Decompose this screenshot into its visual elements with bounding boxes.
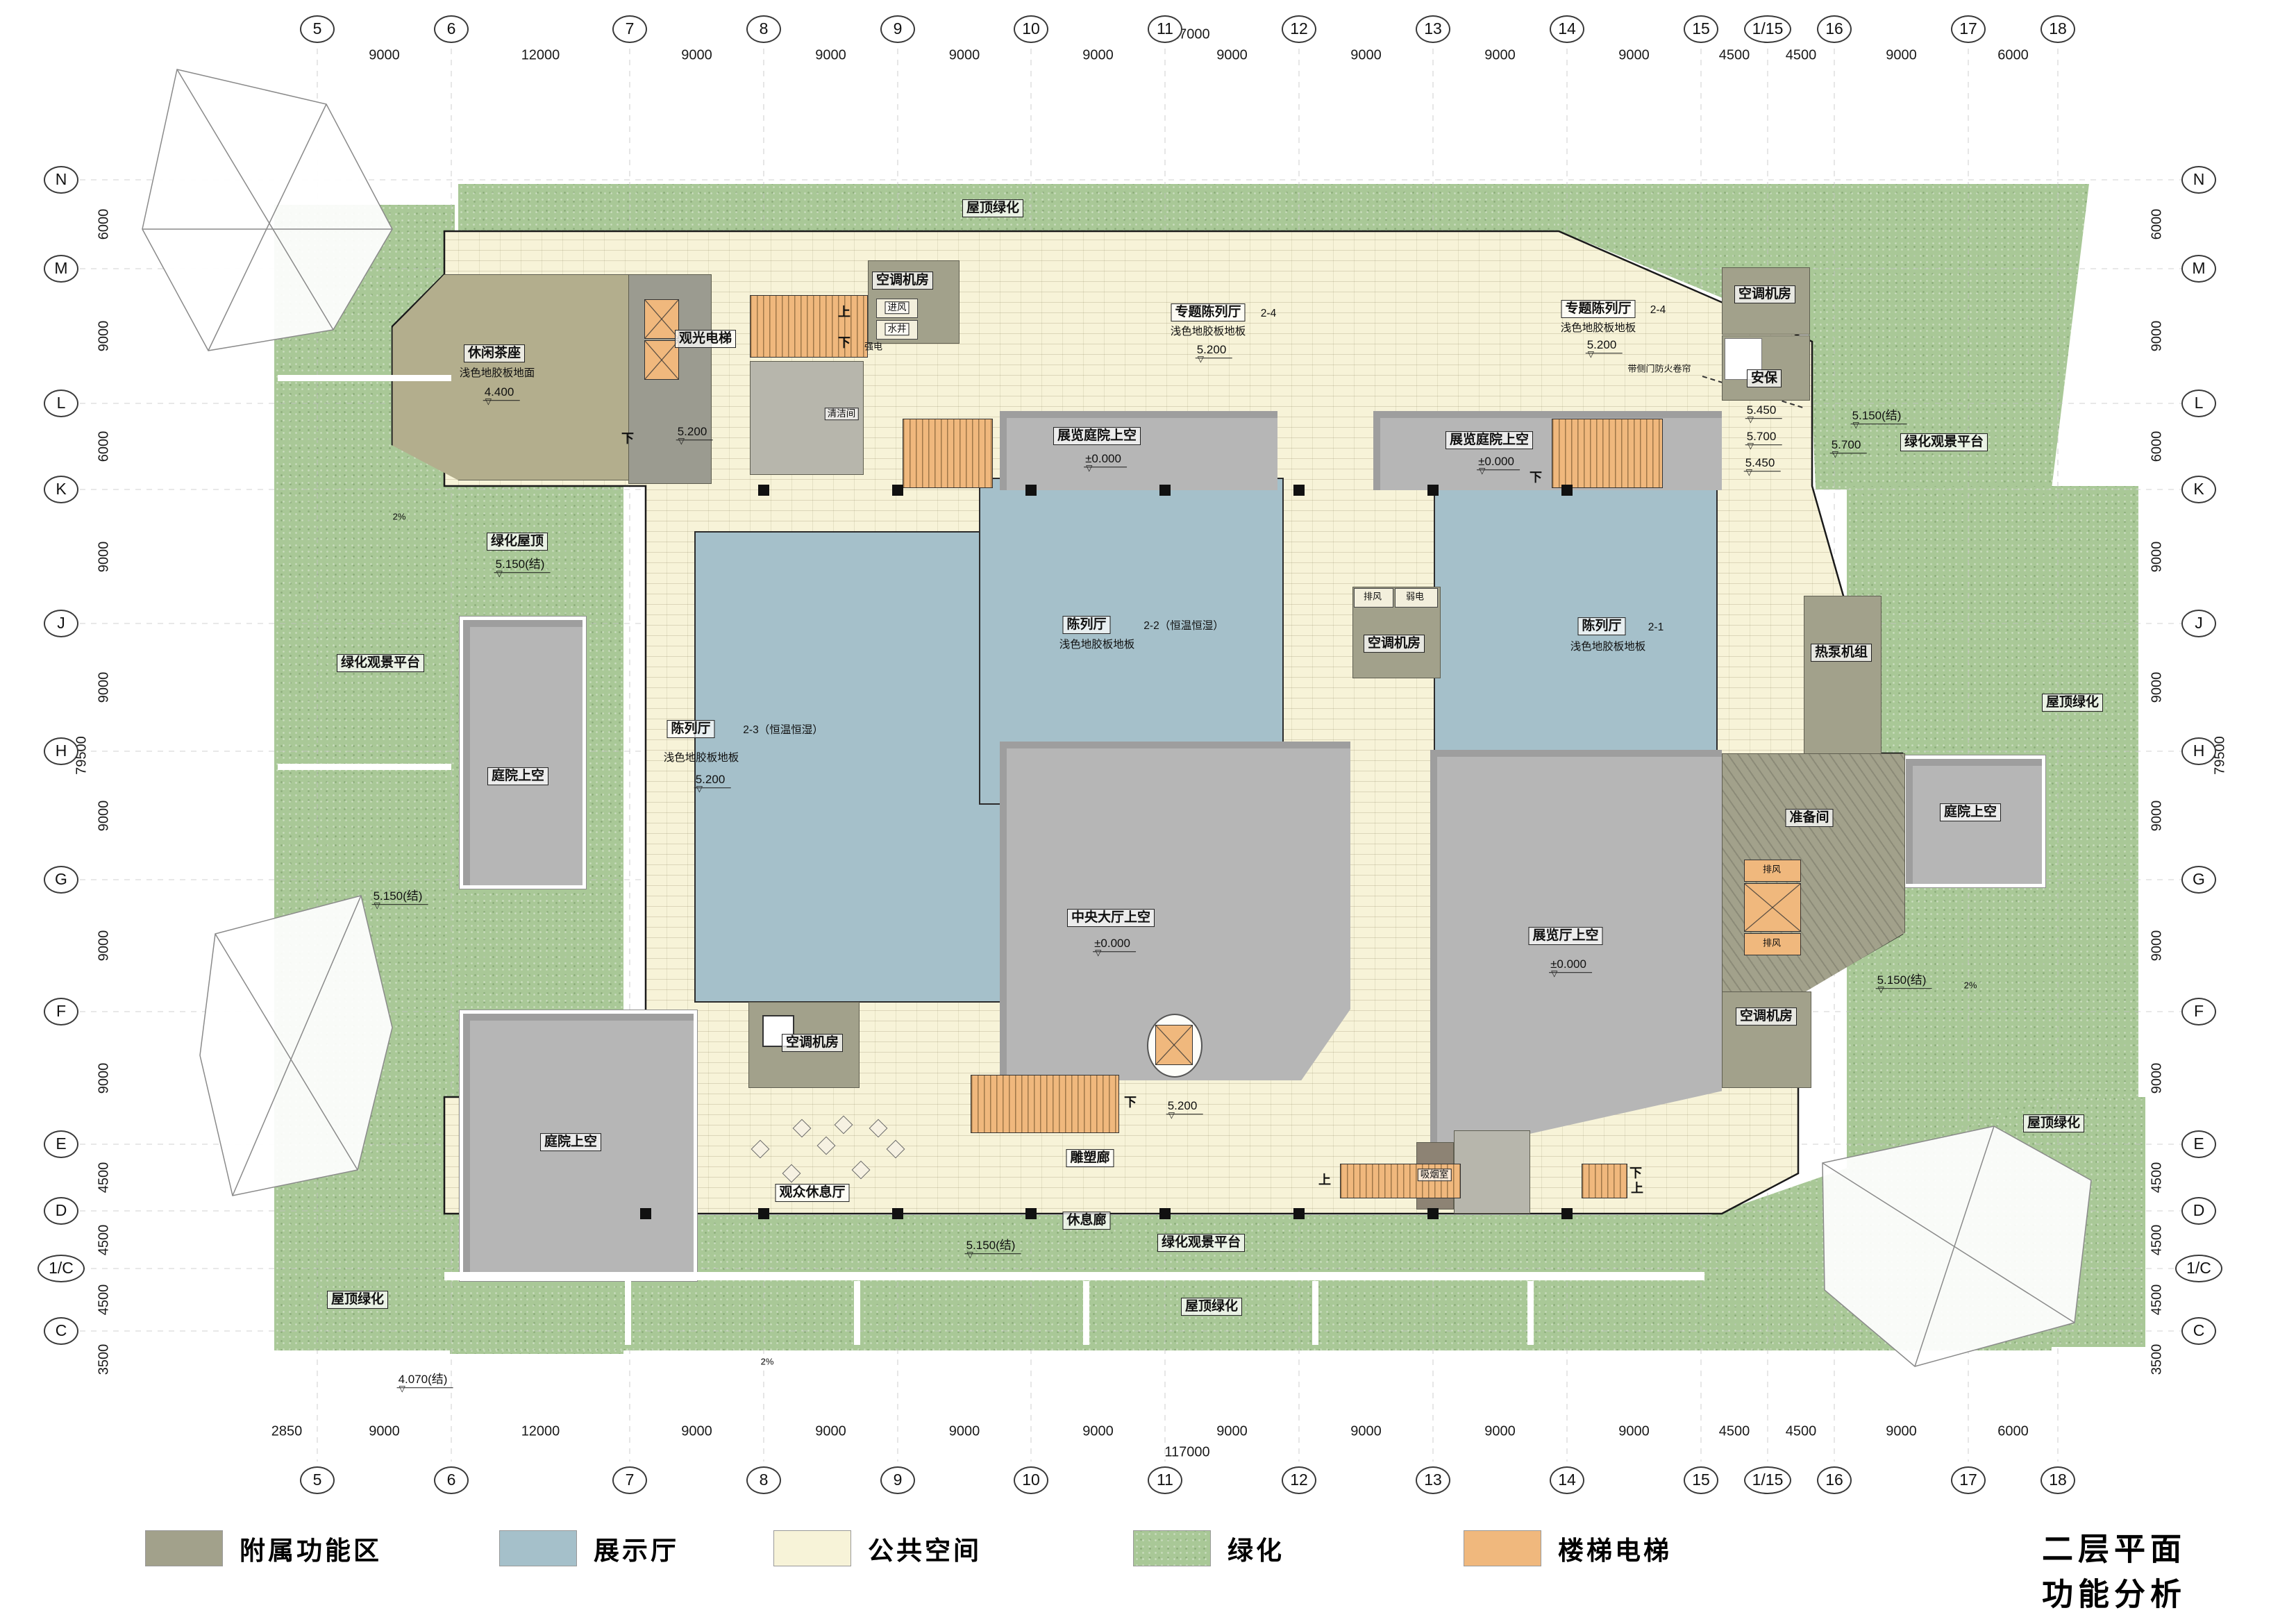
level-special-2: 5.200 bbox=[1586, 338, 1623, 353]
label-strong-elec: 强电 bbox=[864, 342, 882, 353]
grid-bubble-row: C bbox=[2181, 1317, 2216, 1345]
legend-label-green: 绿化 bbox=[1227, 1530, 1284, 1567]
grid-bubble-col: 12 bbox=[1282, 1466, 1316, 1494]
label-slope-left: 2% bbox=[393, 512, 406, 523]
label-green-platform-topright: 绿化观景平台 bbox=[1900, 433, 1988, 451]
label-special-hall-1: 专题陈列厅 bbox=[1171, 303, 1245, 321]
grid-bubble-col: 16 bbox=[1817, 15, 1852, 43]
walkway-divider bbox=[1312, 1281, 1318, 1345]
label-down-top-stair: 下 bbox=[838, 336, 850, 351]
label-slope-bottom: 2% bbox=[761, 1357, 774, 1368]
grid-bubble-row: M bbox=[2181, 255, 2216, 283]
dim-label-col: 9000 bbox=[815, 48, 846, 64]
room-toilets-center bbox=[1454, 1130, 1530, 1214]
grid-bubble-col: 11 bbox=[1148, 15, 1182, 43]
grid-bubble-row: F bbox=[2181, 998, 2216, 1026]
dim-label-row: 4500 bbox=[97, 1162, 112, 1194]
level-5150-topright: 5.150(结) bbox=[1851, 409, 1907, 424]
dim-label-col: 9000 bbox=[949, 48, 980, 64]
walkway-divider bbox=[854, 1281, 860, 1345]
label-prep: 准备间 bbox=[1785, 809, 1833, 827]
level-central-sky: ±0.000 bbox=[1093, 937, 1136, 952]
dim-label-row: 6000 bbox=[97, 431, 112, 462]
label-heat-pump: 热泵机组 bbox=[1811, 644, 1872, 662]
dim-label-col: 9000 bbox=[1216, 1424, 1248, 1440]
offset-dim-bottom: 2850 bbox=[271, 1424, 303, 1440]
grid-bubble-col: 8 bbox=[746, 15, 781, 43]
legend-label-hall: 展示厅 bbox=[594, 1530, 679, 1567]
dim-label-row: 9000 bbox=[97, 672, 112, 703]
column-marker bbox=[1159, 485, 1171, 496]
column-marker bbox=[758, 485, 769, 496]
legend-green: 绿化 bbox=[1133, 1530, 1284, 1567]
stair-court-1 bbox=[903, 419, 993, 488]
level-5150-bottom: 5.150(结) bbox=[965, 1239, 1021, 1254]
label-exhibit-court-1: 展览庭院上空 bbox=[1053, 427, 1141, 445]
label-courtyard-right: 庭院上空 bbox=[1940, 803, 2001, 821]
dim-label-col: 9000 bbox=[1082, 1424, 1114, 1440]
label-roof-green-bottomleft: 屋顶绿化 bbox=[327, 1291, 388, 1309]
hall-2-3 bbox=[694, 531, 1003, 1003]
dim-label-row: 4500 bbox=[97, 1224, 112, 1255]
grid-bubble-row: E bbox=[44, 1130, 78, 1158]
stair-central bbox=[971, 1075, 1119, 1133]
grid-bubble-row: J bbox=[44, 610, 78, 637]
grid-bubble-col: 17 bbox=[1951, 15, 1986, 43]
grid-bubble-col: 12 bbox=[1282, 15, 1316, 43]
level-4070: 4.070(结) bbox=[397, 1373, 453, 1388]
grid-bubble-col: 17 bbox=[1951, 1466, 1986, 1494]
grid-bubble-row: G bbox=[44, 866, 78, 894]
label-ac-mid: 空调机房 bbox=[1364, 635, 1425, 653]
column-marker bbox=[1427, 485, 1439, 496]
label-sculpture: 雕塑廊 bbox=[1066, 1149, 1114, 1167]
grid-bubble-row: E bbox=[2181, 1130, 2216, 1158]
label-hall23: 陈列厅 bbox=[667, 720, 714, 738]
grid-bubble-row: L bbox=[2181, 390, 2216, 417]
dim-label-col: 9000 bbox=[681, 1424, 712, 1440]
walkway-divider bbox=[278, 764, 451, 770]
legend-swatch-hall bbox=[499, 1530, 577, 1566]
grid-bubble-row: 1/C bbox=[37, 1255, 85, 1282]
dim-label-col: 6000 bbox=[1997, 48, 2029, 64]
grid-bubble-row: M bbox=[44, 255, 78, 283]
grid-bubble-row: D bbox=[2181, 1197, 2216, 1225]
label-up-top-stair: 上 bbox=[838, 305, 850, 320]
legend-label-aux: 附属功能区 bbox=[240, 1530, 382, 1567]
level-exhibit-court-1: ±0.000 bbox=[1084, 452, 1127, 467]
dim-label-row: 3500 bbox=[97, 1344, 112, 1375]
level-exhibit-sky: ±0.000 bbox=[1549, 957, 1592, 973]
dim-label-col: 9000 bbox=[369, 1424, 400, 1440]
grid-bubble-col: 15 bbox=[1684, 15, 1718, 43]
dim-label-col: 9000 bbox=[1886, 1424, 1917, 1440]
label-roof-green-right1: 屋顶绿化 bbox=[2042, 694, 2103, 712]
label-sight-lift: 观光电梯 bbox=[675, 330, 736, 348]
level-5450-a: 5.450 bbox=[1745, 403, 1782, 419]
grid-bubble-row: L bbox=[44, 390, 78, 417]
label-weak-elec: 弱电 bbox=[1406, 592, 1424, 603]
dim-label-row: 4500 bbox=[2150, 1162, 2165, 1194]
dim-label-col: 4500 bbox=[1786, 1424, 1817, 1440]
dim-label-col: 9000 bbox=[1350, 48, 1382, 64]
grid-bubble-col: 1/15 bbox=[1744, 15, 1791, 43]
label-tea-floor: 浅色地胶板地面 bbox=[460, 367, 535, 380]
grid-bubble-row: H bbox=[2181, 737, 2216, 765]
legend-swatch-aux bbox=[145, 1530, 223, 1566]
label-hall23-floor: 浅色地胶板地板 bbox=[664, 752, 739, 764]
grid-bubble-col: 15 bbox=[1684, 1466, 1718, 1494]
label-ac-right: 空调机房 bbox=[1736, 1007, 1797, 1026]
label-hall22-no: 2-2（恒温恒湿） bbox=[1143, 620, 1223, 633]
label-exhaust-r2: 排风 bbox=[1763, 939, 1781, 949]
label-down-central-stair: 下 bbox=[1124, 1096, 1137, 1110]
grid-bubble-col: 11 bbox=[1148, 1466, 1182, 1494]
void-exhibit-court-2 bbox=[1373, 411, 1722, 490]
column-marker bbox=[892, 1208, 903, 1219]
label-hall21-floor: 浅色地胶板地板 bbox=[1570, 641, 1646, 653]
sightseeing-elevator-2 bbox=[644, 340, 679, 380]
stair-bottom-right bbox=[1582, 1164, 1627, 1198]
grid-bubble-col: 18 bbox=[2041, 15, 2075, 43]
grid-bubble-col: 9 bbox=[880, 15, 915, 43]
label-roof-green-top: 屋顶绿化 bbox=[962, 199, 1023, 217]
label-exhibit-court-2: 展览庭院上空 bbox=[1446, 431, 1533, 449]
legend-stair: 楼梯电梯 bbox=[1464, 1530, 1672, 1567]
legend-swatch-public bbox=[773, 1530, 851, 1566]
grid-bubble-col: 8 bbox=[746, 1466, 781, 1494]
legend-hall: 展示厅 bbox=[499, 1530, 679, 1567]
label-roof-green-bottom: 屋顶绿化 bbox=[1181, 1298, 1242, 1316]
dim-label-row: 4500 bbox=[97, 1284, 112, 1316]
grid-bubble-row: K bbox=[2181, 476, 2216, 503]
drawing-title: 二层平面功能分析图 bbox=[2042, 1524, 2211, 1624]
dim-label-col: 12000 bbox=[521, 48, 560, 64]
dim-label-col: 9000 bbox=[1082, 48, 1114, 64]
label-exhaust-r1: 排风 bbox=[1763, 865, 1781, 876]
level-exhibit-court-2: ±0.000 bbox=[1477, 455, 1520, 470]
level-hall23: 5.200 bbox=[694, 773, 731, 788]
dim-label-col: 9000 bbox=[1484, 48, 1516, 64]
level-5700-b: 5.700 bbox=[1830, 438, 1867, 453]
dim-label-row: 6000 bbox=[97, 209, 112, 240]
dim-label-row: 9000 bbox=[2150, 930, 2165, 962]
column-marker bbox=[892, 485, 903, 496]
label-special-no-2: 2-4 bbox=[1650, 304, 1666, 317]
dim-label-col: 9000 bbox=[949, 1424, 980, 1440]
walkway-divider bbox=[625, 1281, 631, 1345]
legend-swatch-green bbox=[1133, 1530, 1211, 1566]
label-ac-top: 空调机房 bbox=[872, 271, 933, 290]
dim-label-col: 9000 bbox=[1484, 1424, 1516, 1440]
dim-label-col: 9000 bbox=[1216, 48, 1248, 64]
dim-label-col: 9000 bbox=[681, 48, 712, 64]
dim-label-row: 6000 bbox=[2150, 209, 2165, 240]
sightseeing-elevator-1 bbox=[644, 299, 679, 339]
level-5700-a: 5.700 bbox=[1745, 430, 1782, 445]
dim-label-col: 6000 bbox=[1997, 1424, 2029, 1440]
dim-label-row: 9000 bbox=[2150, 321, 2165, 352]
walkway-divider bbox=[1083, 1281, 1089, 1345]
void-courtyard-right bbox=[1902, 755, 2045, 887]
grid-bubble-col: 5 bbox=[300, 15, 335, 43]
dim-label-col: 4500 bbox=[1719, 48, 1750, 64]
label-up-right-stair: 上 bbox=[1631, 1182, 1643, 1196]
legend-label-stair: 楼梯电梯 bbox=[1558, 1530, 1672, 1567]
level-5150-left: 5.150(结) bbox=[372, 889, 428, 905]
label-down-court-stair: 下 bbox=[1530, 471, 1542, 485]
level-tea: 4.400 bbox=[483, 385, 520, 401]
dim-label-row: 3500 bbox=[2150, 1344, 2165, 1375]
label-slope-right: 2% bbox=[1964, 981, 1977, 991]
grid-bubble-row: D bbox=[44, 1197, 78, 1225]
label-hall22: 陈列厅 bbox=[1062, 616, 1110, 634]
walkway-divider bbox=[1527, 1281, 1534, 1345]
dim-label-row: 9000 bbox=[97, 321, 112, 352]
stair-court-2 bbox=[1552, 419, 1663, 488]
legend-label-public: 公共空间 bbox=[868, 1530, 982, 1567]
void-courtyard-left-upper bbox=[460, 617, 586, 889]
dim-label-row: 9000 bbox=[2150, 672, 2165, 703]
label-hall21-no: 2-1 bbox=[1648, 621, 1664, 634]
label-security: 安保 bbox=[1747, 369, 1782, 387]
level-lobby-top: 5.200 bbox=[676, 425, 713, 440]
dim-label-row: 9000 bbox=[97, 1062, 112, 1094]
grid-bubble-col: 1/15 bbox=[1744, 1466, 1791, 1494]
grid-bubble-row: F bbox=[44, 998, 78, 1026]
grid-bubble-col: 16 bbox=[1817, 1466, 1852, 1494]
label-special-floor-1: 浅色地胶板地板 bbox=[1171, 326, 1246, 338]
label-down-right-stair: 下 bbox=[1629, 1166, 1642, 1181]
dim-label-col: 9000 bbox=[369, 48, 400, 64]
grid-bubble-col: 7 bbox=[612, 15, 647, 43]
label-lounge: 观众休息厅 bbox=[775, 1184, 849, 1202]
label-roof-green-right2: 屋顶绿化 bbox=[2023, 1114, 2084, 1132]
label-fire-shutter: 带侧门防火卷帘 bbox=[1627, 365, 1691, 375]
dim-label-col: 4500 bbox=[1719, 1424, 1750, 1440]
label-hall23-no: 2-3（恒温恒湿） bbox=[743, 724, 823, 737]
level-special-1: 5.200 bbox=[1196, 343, 1232, 358]
column-marker bbox=[640, 1208, 651, 1219]
dim-label-row: 9000 bbox=[97, 541, 112, 572]
grid-bubble-col: 5 bbox=[300, 1466, 335, 1494]
grid-bubble-row: G bbox=[2181, 866, 2216, 894]
dim-label-row: 4500 bbox=[2150, 1224, 2165, 1255]
column-marker bbox=[1561, 485, 1573, 496]
dim-label-row: 9000 bbox=[2150, 1062, 2165, 1094]
grid-bubble-col: 14 bbox=[1550, 15, 1584, 43]
grid-bubble-row: N bbox=[44, 166, 78, 194]
dim-label-col: 9000 bbox=[815, 1424, 846, 1440]
grid-bubble-col: 9 bbox=[880, 1466, 915, 1494]
grid-bubble-col: 10 bbox=[1014, 1466, 1048, 1494]
label-courtyard-left-upper: 庭院上空 bbox=[487, 767, 548, 785]
column-marker bbox=[1159, 1208, 1171, 1219]
label-smoking: 吸烟室 bbox=[1418, 1169, 1452, 1181]
grid-bubble-col: 14 bbox=[1550, 1466, 1584, 1494]
dim-label-col: 4500 bbox=[1786, 48, 1817, 64]
dim-label-col: 9000 bbox=[1618, 1424, 1650, 1440]
label-rest-corridor: 休息廊 bbox=[1062, 1212, 1110, 1230]
label-central-sky: 中央大厅上空 bbox=[1067, 909, 1155, 927]
grid-bubble-row: 1/C bbox=[2175, 1255, 2222, 1282]
column-marker bbox=[1427, 1208, 1439, 1219]
grid-bubble-col: 6 bbox=[434, 15, 469, 43]
label-up-bottom-stair: 上 bbox=[1318, 1173, 1331, 1188]
grid-bubble-col: 10 bbox=[1014, 15, 1048, 43]
dim-label-row: 6000 bbox=[2150, 431, 2165, 462]
dim-label-row: 9000 bbox=[97, 930, 112, 962]
label-hall21: 陈列厅 bbox=[1577, 617, 1625, 635]
column-marker bbox=[1293, 1208, 1305, 1219]
dim-label-row: 9000 bbox=[2150, 800, 2165, 831]
label-exhibit-sky: 展览厅上空 bbox=[1528, 927, 1602, 945]
label-courtyard-left-lower: 庭院上空 bbox=[540, 1133, 601, 1151]
column-marker bbox=[1025, 1208, 1037, 1219]
level-central-stair: 5.200 bbox=[1166, 1099, 1203, 1114]
column-marker bbox=[1561, 1208, 1573, 1219]
label-ac-bottomleft: 空调机房 bbox=[782, 1034, 843, 1052]
level-5150-right: 5.150(结) bbox=[1876, 973, 1932, 989]
level-5450-b: 5.450 bbox=[1744, 456, 1781, 471]
grid-bubble-col: 7 bbox=[612, 1466, 647, 1494]
label-tea: 休闲茶座 bbox=[464, 344, 525, 362]
dim-label-row: 9000 bbox=[2150, 541, 2165, 572]
dim-label-col: 9000 bbox=[1618, 48, 1650, 64]
void-exhibit-hall bbox=[1430, 750, 1722, 1156]
grid-bubble-col: 13 bbox=[1416, 15, 1450, 43]
column-marker bbox=[1025, 485, 1037, 496]
label-special-floor-2: 浅色地胶板地板 bbox=[1561, 322, 1636, 335]
label-cleaning: 清洁间 bbox=[825, 408, 859, 420]
grid-bubble-row: J bbox=[2181, 610, 2216, 637]
dim-label-row: 4500 bbox=[2150, 1284, 2165, 1316]
column-marker bbox=[1293, 485, 1305, 496]
level-green-roof-left: 5.150(结) bbox=[494, 558, 551, 573]
label-ac-topright: 空调机房 bbox=[1734, 285, 1795, 303]
room-ac-right bbox=[1722, 991, 1811, 1088]
walkway-divider bbox=[278, 375, 451, 381]
legend-swatch-stair bbox=[1464, 1530, 1541, 1566]
dim-label-col: 12000 bbox=[521, 1424, 560, 1440]
grid-bubble-row: K bbox=[44, 476, 78, 503]
dim-label-col: 9000 bbox=[1886, 48, 1917, 64]
label-down-tea: 下 bbox=[621, 432, 634, 446]
legend-aux: 附属功能区 bbox=[145, 1530, 382, 1567]
service-elevator-right bbox=[1744, 883, 1801, 932]
label-hall22-floor: 浅色地胶板地板 bbox=[1059, 639, 1135, 651]
label-green-platform-bottom: 绿化观景平台 bbox=[1157, 1234, 1245, 1252]
dim-label-col: 9000 bbox=[1350, 1424, 1382, 1440]
oval-elevator bbox=[1155, 1025, 1193, 1065]
grid-bubble-col: 13 bbox=[1416, 1466, 1450, 1494]
label-special-hall-2: 专题陈列厅 bbox=[1561, 300, 1635, 318]
grid-bubble-row: C bbox=[44, 1317, 78, 1345]
walkway-strip bbox=[444, 1272, 1704, 1280]
void-exhibit-court-1 bbox=[1000, 411, 1277, 490]
label-green-roof-left: 绿化屋顶 bbox=[487, 533, 548, 551]
grid-bubble-row: H bbox=[44, 737, 78, 765]
label-special-no-1: 2-4 bbox=[1261, 308, 1276, 320]
grid-bubble-col: 6 bbox=[434, 1466, 469, 1494]
grid-bubble-row: N bbox=[2181, 166, 2216, 194]
label-intake: 进风 bbox=[885, 301, 910, 314]
grid-bubble-col: 18 bbox=[2041, 1466, 2075, 1494]
room-heat-pump bbox=[1804, 596, 1882, 769]
label-green-platform-left: 绿化观景平台 bbox=[337, 654, 424, 672]
total-width-bottom: 117000 bbox=[1164, 1445, 1209, 1461]
legend-public: 公共空间 bbox=[773, 1530, 982, 1567]
dim-label-row: 9000 bbox=[97, 800, 112, 831]
label-exhaust-mid: 排风 bbox=[1364, 592, 1382, 603]
label-well: 水井 bbox=[885, 323, 910, 335]
floor-plan-canvas: 屋顶绿化 空调机房 进风 水井 强电 清洁间 观光电梯 上 下 休闲茶座 浅色地… bbox=[0, 0, 2296, 1624]
column-marker bbox=[758, 1208, 769, 1219]
